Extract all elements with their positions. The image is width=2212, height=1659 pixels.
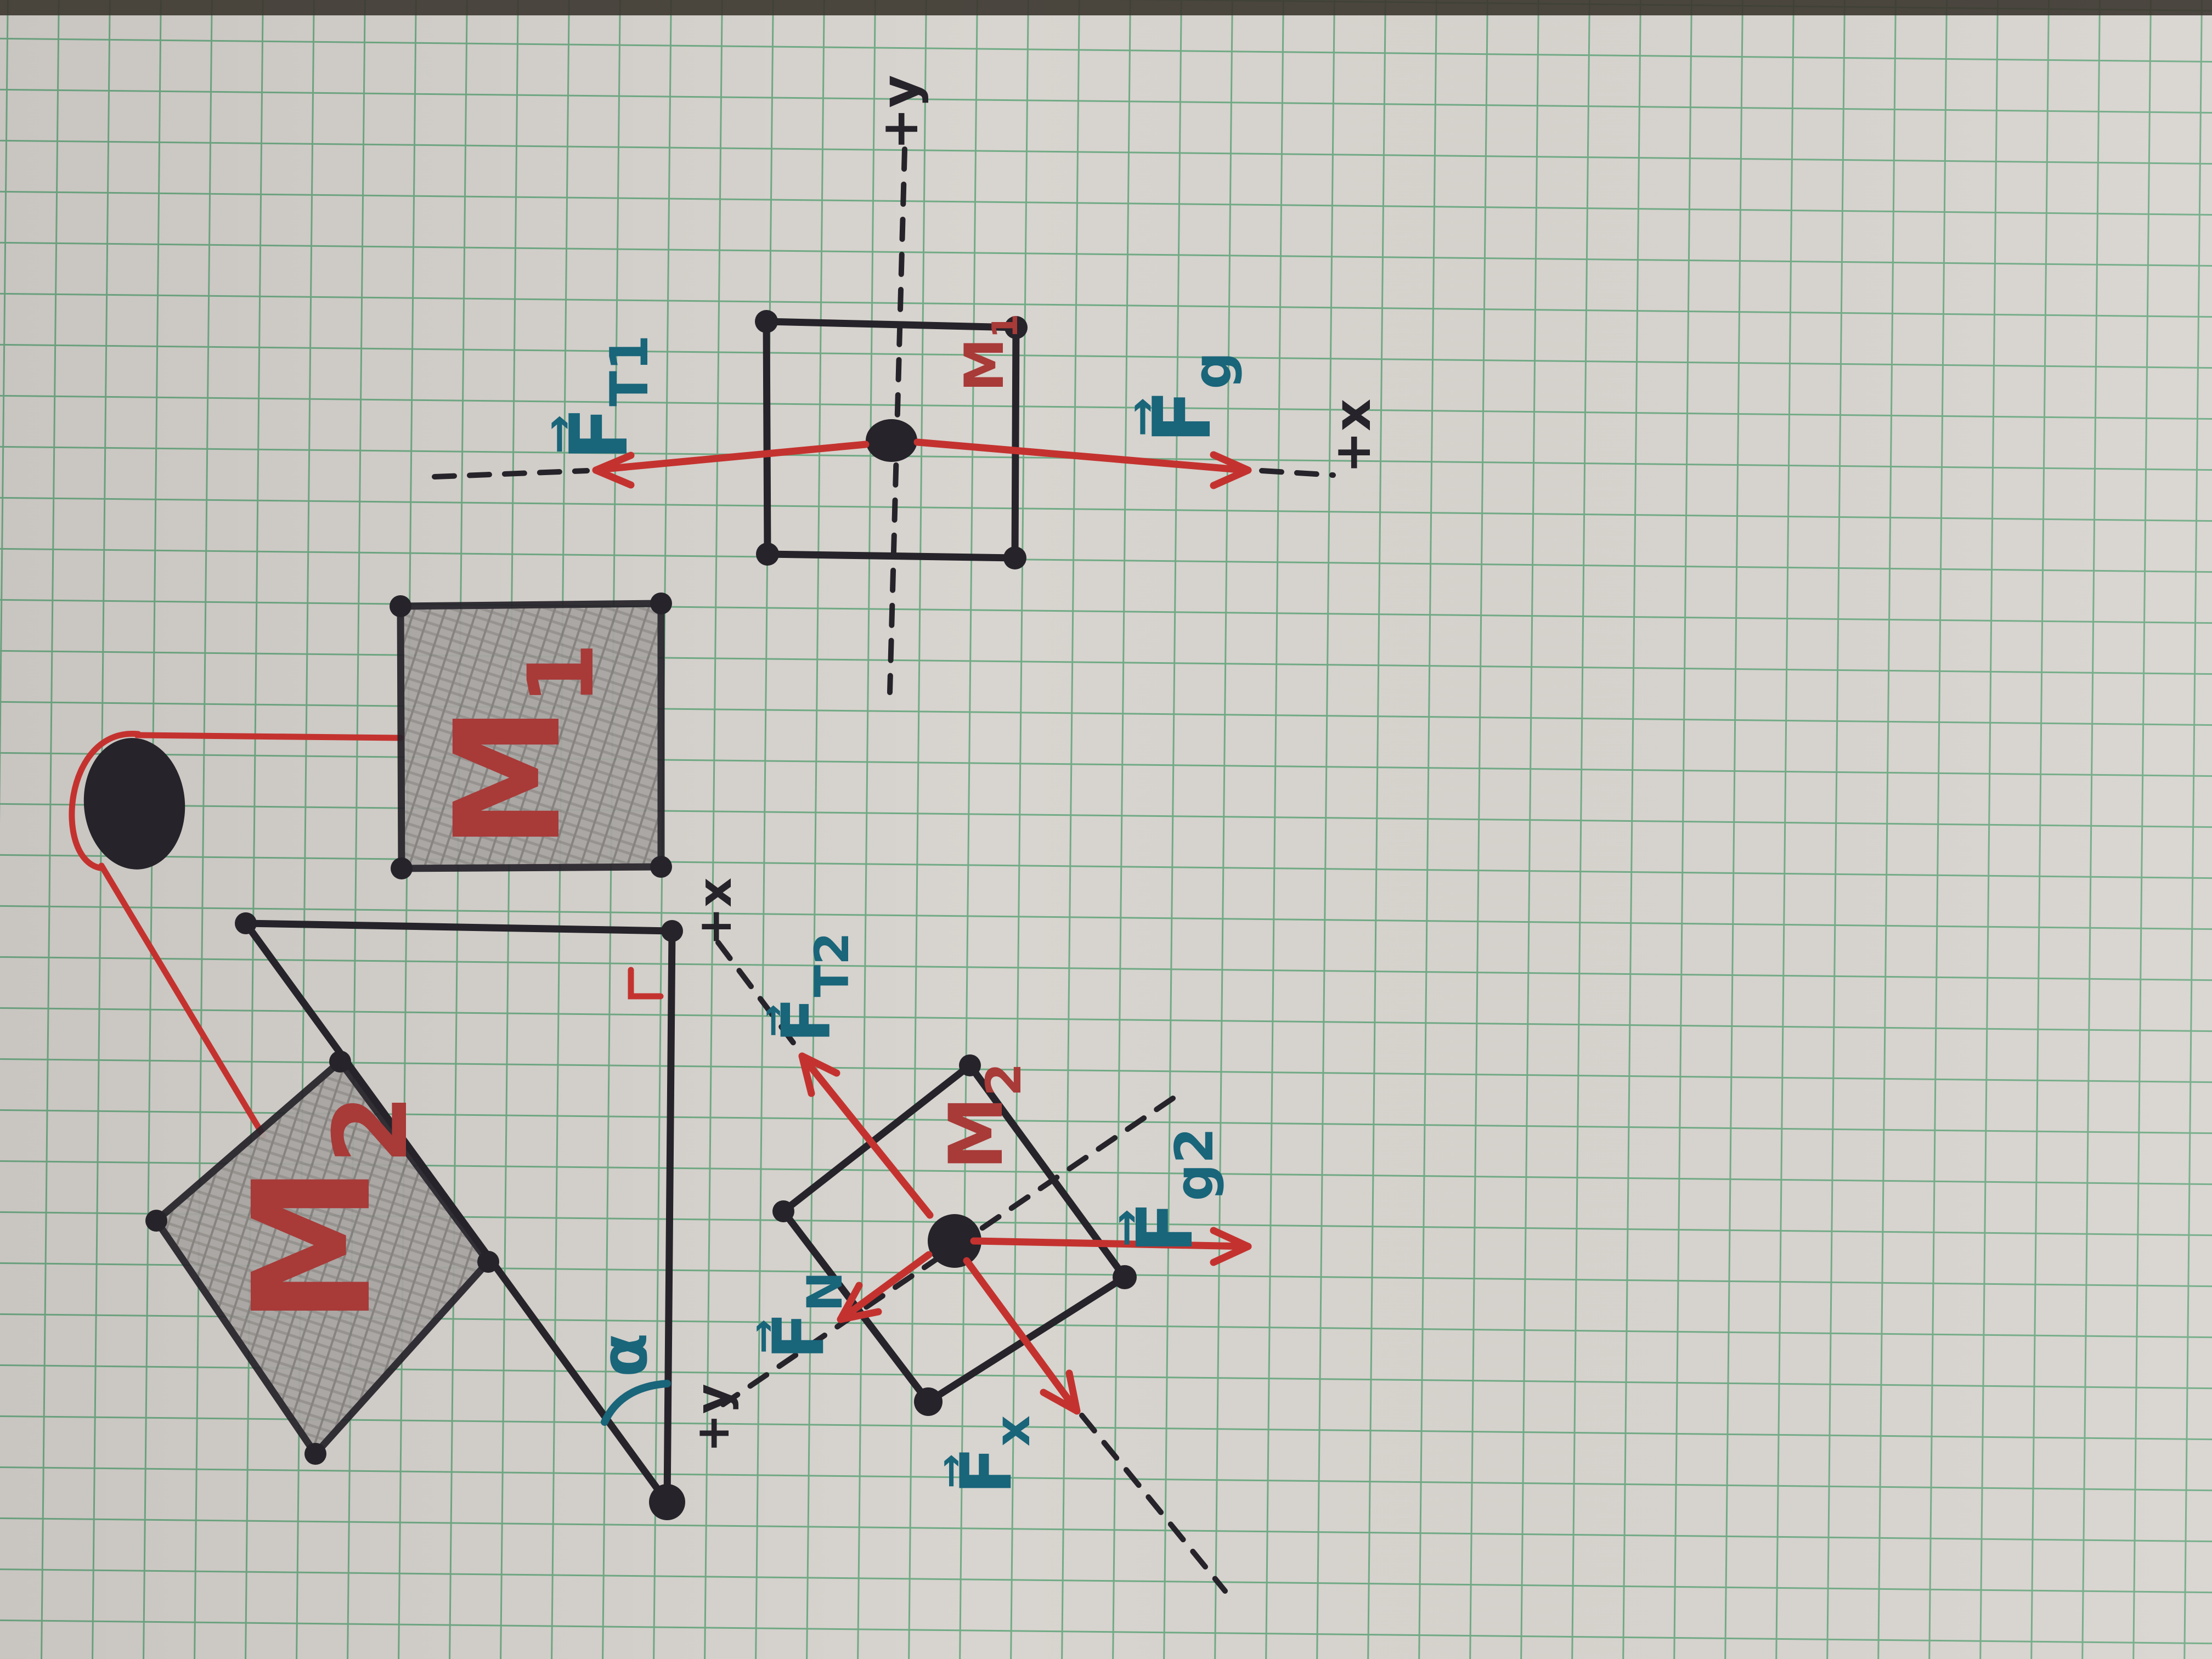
corner-dot <box>304 1443 326 1465</box>
corner-dot <box>650 856 672 878</box>
corner-dot <box>329 1051 351 1073</box>
corner-dot <box>1003 546 1026 569</box>
corner-dot <box>755 310 778 333</box>
corner-dot <box>914 1387 943 1416</box>
incline-vertical <box>667 931 672 1502</box>
axis-x-label: +x <box>1323 399 1382 473</box>
vertex-dot <box>661 920 683 942</box>
axis-y-label: +y <box>686 1384 740 1452</box>
corner-dot <box>390 595 411 617</box>
photo-of-graph-paper: +y +x F⃗T1 F⃗g M1 <box>0 0 2212 1659</box>
center-of-mass-dot <box>866 419 917 462</box>
corner-dot <box>650 592 672 614</box>
angle-label: α <box>586 1333 662 1377</box>
vertex-dot <box>649 1484 685 1520</box>
vertex-dot <box>235 912 257 934</box>
corner-dot <box>1113 1265 1137 1289</box>
axis-x-label: +x <box>688 878 742 946</box>
rope-horizontal <box>137 735 400 738</box>
axis-y-label: +y <box>871 75 929 150</box>
corner-dot <box>756 543 779 566</box>
corner-dot <box>772 1200 794 1222</box>
corner-dot <box>391 857 413 879</box>
corner-dot <box>477 1251 499 1273</box>
desk-edge <box>0 0 2212 15</box>
corner-dot <box>145 1210 167 1232</box>
